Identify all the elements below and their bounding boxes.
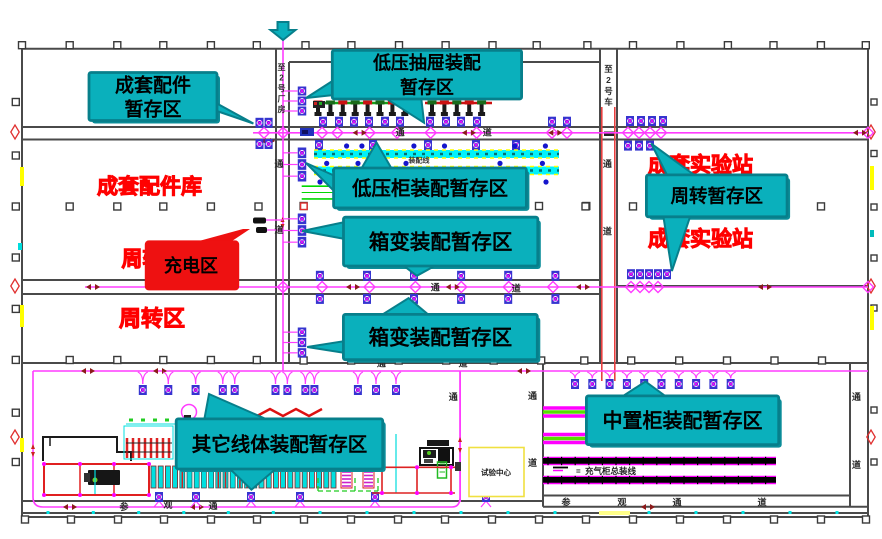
svg-text:通: 通	[603, 158, 612, 169]
svg-text:通: 通	[528, 390, 537, 401]
svg-text:成套配件: 成套配件	[115, 73, 191, 96]
svg-text:至: 至	[604, 64, 613, 74]
svg-text:2: 2	[279, 74, 284, 83]
svg-text:道: 道	[528, 457, 537, 468]
svg-text:厂: 厂	[278, 95, 286, 104]
svg-text:道: 道	[483, 127, 492, 138]
svg-text:通: 通	[396, 127, 405, 138]
svg-text:周转暂存区: 周转暂存区	[670, 186, 763, 207]
svg-text:车: 车	[604, 97, 613, 107]
svg-text:成套实验站: 成套实验站	[648, 227, 753, 251]
svg-text:充气柜总装线: 充气柜总装线	[585, 466, 637, 476]
svg-text:房: 房	[278, 104, 286, 114]
svg-text:周转区: 周转区	[119, 306, 185, 331]
svg-text:道: 道	[603, 226, 612, 237]
svg-text:参: 参	[561, 497, 571, 508]
svg-text:通: 通	[672, 497, 681, 508]
svg-text:装配线: 装配线	[408, 156, 430, 165]
svg-text:暂存区: 暂存区	[400, 76, 454, 97]
svg-text:=: =	[576, 467, 581, 476]
svg-text:中置柜装配暂存区: 中置柜装配暂存区	[603, 408, 763, 432]
svg-text:成套配件库: 成套配件库	[97, 175, 202, 199]
svg-text:通: 通	[431, 282, 440, 293]
svg-text:通: 通	[274, 158, 283, 169]
svg-text:箱变装配暂存区: 箱变装配暂存区	[369, 325, 513, 349]
svg-text:暂存区: 暂存区	[124, 97, 181, 120]
svg-text:至: 至	[278, 63, 286, 72]
svg-text:号: 号	[278, 84, 286, 93]
svg-text:低压柜装配暂存区: 低压柜装配暂存区	[351, 177, 508, 200]
svg-text:观: 观	[163, 500, 172, 510]
svg-text:通: 通	[208, 500, 217, 511]
svg-text:号: 号	[604, 86, 613, 96]
svg-text:道: 道	[512, 283, 521, 294]
svg-text:充电区: 充电区	[164, 255, 218, 276]
svg-text:道: 道	[274, 224, 283, 235]
svg-text:参: 参	[119, 501, 129, 512]
svg-text:其它线体装配暂存区: 其它线体装配暂存区	[192, 433, 368, 456]
svg-text:道: 道	[852, 459, 861, 470]
svg-text:通: 通	[449, 391, 458, 402]
svg-text:观: 观	[617, 498, 626, 508]
svg-text:试验中心: 试验中心	[481, 467, 511, 477]
svg-text:箱变装配暂存区: 箱变装配暂存区	[369, 230, 513, 254]
svg-text:通: 通	[852, 391, 861, 402]
svg-text:2: 2	[606, 75, 611, 85]
svg-text:低压抽屉装配: 低压抽屉装配	[372, 52, 481, 73]
svg-text:道: 道	[757, 497, 766, 508]
